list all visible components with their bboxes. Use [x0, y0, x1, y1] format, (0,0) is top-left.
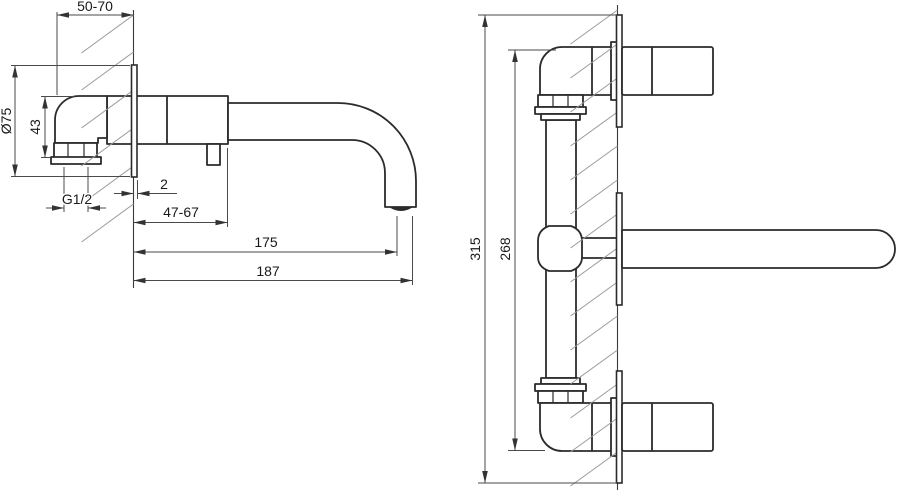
dimension-overall-reach: 187 [134, 216, 413, 285]
arrowhead [57, 12, 69, 18]
arrowhead [42, 97, 48, 109]
dimension-in-wall-depth: 50-70 [57, 0, 134, 95]
top-hex-nut [538, 95, 583, 107]
arrowhead [12, 66, 18, 78]
top-elbow [540, 47, 617, 95]
dimension-label: 2 [160, 176, 168, 192]
hatch-line [571, 282, 618, 316]
arrowhead [134, 249, 146, 255]
arrowhead [134, 220, 146, 226]
dimension-label: 43 [27, 119, 43, 135]
inlet-elbow-side [55, 96, 107, 143]
hatch-line [82, 15, 134, 53]
dimension-label: G1/2 [62, 191, 93, 207]
arrowhead [512, 439, 518, 451]
dimension-label: 175 [254, 234, 278, 250]
hatch-line [571, 180, 618, 214]
escutcheon-plate-side [132, 65, 138, 177]
hatch-line [82, 204, 134, 242]
hatch-line [571, 452, 618, 486]
dimension-thread: G1/2 [46, 167, 106, 212]
tee-body [538, 226, 582, 271]
bottom-hex-nut [538, 391, 583, 403]
arrowhead [512, 50, 518, 62]
dimension-plate-offset: 2 [114, 176, 177, 199]
dimension-label: Ø75 [0, 108, 14, 135]
arrowhead [12, 165, 18, 177]
dimension-label: 268 [497, 237, 513, 261]
faucet-technical-drawing: 50-70 Ø75 43 G1/2 2 [0, 0, 900, 493]
arrowhead [134, 278, 146, 284]
hatch-line [571, 350, 618, 384]
spout-outline-side [228, 103, 416, 207]
arrowhead [482, 471, 488, 483]
hatch-line [571, 316, 618, 350]
arrowhead [122, 12, 134, 18]
arrowhead [122, 191, 134, 197]
bottom-handle [622, 403, 713, 451]
drawing-svg: 50-70 Ø75 43 G1/2 2 [0, 0, 900, 493]
arrowhead [42, 146, 48, 158]
fixing-tab [207, 144, 220, 165]
top-handle [622, 47, 713, 95]
hex-nut-side [54, 143, 97, 158]
dimension-label: 187 [256, 263, 280, 279]
hatch-line [571, 146, 618, 180]
top-union-flange [535, 107, 586, 114]
arrowhead [216, 220, 228, 226]
dimension-label: 47-67 [163, 204, 199, 220]
spout-outline-front [622, 230, 895, 268]
spout-stub [578, 238, 617, 258]
top-union-ring [541, 114, 580, 120]
bottom-union-flange [535, 384, 586, 391]
arrowhead [138, 191, 150, 197]
inlet-flange-side [51, 157, 101, 164]
arrowhead [482, 15, 488, 27]
dimension-label: 315 [467, 237, 483, 261]
aerator-tip [389, 207, 413, 211]
arrowhead [385, 249, 397, 255]
hatch-line [82, 52, 134, 90]
side-view [51, 10, 416, 288]
dimension-label: 50-70 [77, 0, 113, 14]
front-view [535, 5, 895, 490]
arrowhead [401, 278, 413, 284]
